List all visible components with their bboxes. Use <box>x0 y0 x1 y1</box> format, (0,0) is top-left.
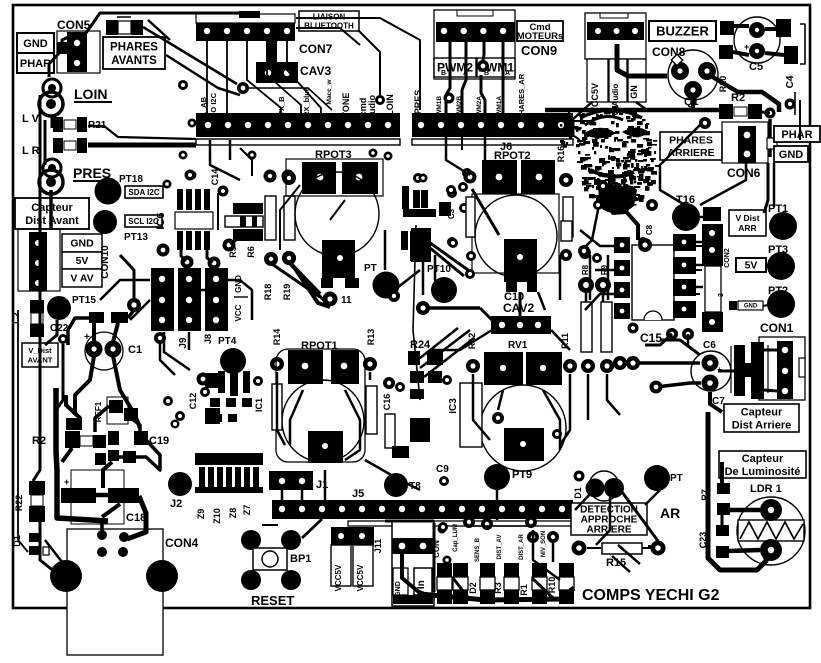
svg-text:PT15: PT15 <box>72 295 96 306</box>
svg-text:RESET: RESET <box>251 593 294 608</box>
svg-text:PHAR: PHAR <box>781 129 812 141</box>
svg-text:Capteur: Capteur <box>742 453 784 465</box>
svg-text:CON10: CON10 <box>100 245 111 279</box>
svg-text:BP1: BP1 <box>290 553 311 565</box>
svg-text:L R: L R <box>22 145 40 157</box>
svg-text:Dist Arriere: Dist Arriere <box>732 419 792 431</box>
svg-text:J8: J8 <box>203 334 213 344</box>
svg-text:R1: R1 <box>519 584 529 596</box>
svg-text:PT10: PT10 <box>427 264 451 275</box>
svg-text:SENS_B: SENS_B <box>475 537 481 562</box>
svg-text:GND: GND <box>744 304 758 310</box>
svg-text:R8: R8 <box>581 264 590 275</box>
svg-text:R3: R3 <box>493 582 503 594</box>
svg-text:J2: J2 <box>170 498 182 510</box>
svg-text:PHARES: PHARES <box>669 134 713 146</box>
svg-text:J1: J1 <box>316 479 328 491</box>
svg-text:D1: D1 <box>573 487 583 499</box>
svg-text:Macc_w: Macc_w <box>326 79 333 105</box>
svg-text:C3: C3 <box>447 208 456 219</box>
svg-text:PT9: PT9 <box>512 469 532 481</box>
svg-text:A: A <box>505 70 510 77</box>
svg-text:R10: R10 <box>547 577 557 594</box>
svg-text:CON5: CON5 <box>57 18 91 32</box>
svg-text:SDA I2C: SDA I2C <box>128 188 159 197</box>
svg-text:R19: R19 <box>282 284 292 301</box>
svg-text:DIST_AR: DIST_AR <box>519 533 525 559</box>
svg-text:CON7: CON7 <box>299 42 333 56</box>
svg-text:ARR: ARR <box>738 223 756 233</box>
svg-text:C15: C15 <box>640 331 662 345</box>
svg-text:De Luminosité: De Luminosité <box>725 466 801 478</box>
svg-text:D2: D2 <box>468 582 478 594</box>
svg-text:NIV_SON: NIV_SON <box>541 531 547 557</box>
svg-text:Z7: Z7 <box>242 505 252 516</box>
svg-text:VCC5V: VCC5V <box>356 564 365 591</box>
svg-text:PHARES: PHARES <box>110 41 158 53</box>
svg-text:LDR 1: LDR 1 <box>750 483 782 495</box>
svg-text:IC6: IC6 <box>155 212 167 229</box>
svg-text:GND: GND <box>395 581 402 597</box>
svg-text:LIAISON: LIAISON <box>313 12 346 21</box>
svg-text:CON8: CON8 <box>652 45 686 59</box>
svg-text:J11: J11 <box>373 539 383 554</box>
svg-text:IC1: IC1 <box>254 398 264 412</box>
svg-text:RV1: RV1 <box>508 340 528 351</box>
svg-text:PT13: PT13 <box>124 232 148 243</box>
svg-text:CON2: CON2 <box>724 248 731 268</box>
svg-text:Cap_LUM: Cap_LUM <box>453 524 459 552</box>
svg-text:BUZZER: BUZZER <box>656 24 709 39</box>
svg-text:CAV3: CAV3 <box>300 64 331 78</box>
svg-text:MOTEURs: MOTEURs <box>517 31 563 42</box>
svg-text:5V: 5V <box>745 260 758 272</box>
svg-text:R22: R22 <box>14 495 24 512</box>
svg-text:PRES: PRES <box>413 90 423 115</box>
svg-text:C12: C12 <box>188 393 198 410</box>
svg-text:C9: C9 <box>436 464 449 475</box>
svg-text:C4: C4 <box>785 75 796 88</box>
svg-text:J9: J9 <box>178 337 189 349</box>
svg-text:PT: PT <box>364 263 377 274</box>
svg-text:R14: R14 <box>272 329 282 346</box>
svg-text:5V: 5V <box>76 255 89 267</box>
svg-text:R5: R5 <box>228 246 238 258</box>
svg-text:PT4: PT4 <box>218 336 237 347</box>
svg-text:CON9: CON9 <box>521 43 557 58</box>
svg-text:C16: C16 <box>382 394 392 411</box>
svg-text:C6: C6 <box>703 340 716 351</box>
svg-text:R24: R24 <box>410 339 431 351</box>
svg-text:L V: L V <box>22 113 40 125</box>
svg-text:D1: D1 <box>12 535 22 547</box>
svg-text:3: 3 <box>718 293 725 297</box>
svg-text:PT: PT <box>670 473 683 484</box>
svg-text:R16: R16 <box>556 146 566 163</box>
svg-text:C22: C22 <box>50 323 69 334</box>
svg-text:AR: AR <box>660 505 680 521</box>
svg-text:PHAR: PHAR <box>20 58 51 70</box>
svg-text:+: + <box>744 42 749 52</box>
svg-text:B: B <box>441 70 446 77</box>
svg-text:Alim Accu: Alim Accu <box>397 597 429 604</box>
svg-text:V Dist: V Dist <box>735 213 759 223</box>
svg-text:CON: CON <box>432 540 441 558</box>
svg-text:GN: GN <box>629 85 639 99</box>
svg-text:C1: C1 <box>128 344 142 356</box>
svg-text:GND: GND <box>234 275 243 293</box>
svg-text:+: + <box>84 332 90 343</box>
svg-text:Z10: Z10 <box>212 508 222 524</box>
svg-text:CON1: CON1 <box>760 321 794 335</box>
svg-text:11: 11 <box>341 295 352 306</box>
svg-text:COMPS YECHI G2: COMPS YECHI G2 <box>582 587 720 604</box>
svg-text:R13: R13 <box>366 329 376 346</box>
svg-text:AVANTS: AVANTS <box>111 55 157 67</box>
svg-text:Z8: Z8 <box>228 508 238 519</box>
svg-text:Capteur: Capteur <box>741 406 783 418</box>
svg-text:C2: C2 <box>11 312 21 324</box>
svg-text:VCC5V: VCC5V <box>334 564 343 591</box>
svg-text:R6: R6 <box>246 246 256 258</box>
svg-text:DIST_AV: DIST_AV <box>497 535 503 560</box>
svg-text:PT18: PT18 <box>119 174 143 185</box>
svg-text:LOIN: LOIN <box>74 86 107 102</box>
svg-text:Z9: Z9 <box>196 509 206 520</box>
svg-text:+: + <box>64 477 69 487</box>
svg-text:GND: GND <box>23 38 48 50</box>
svg-text:C18: C18 <box>126 512 146 524</box>
svg-text:VCC: VCC <box>234 304 243 321</box>
svg-text:C8: C8 <box>645 224 654 235</box>
svg-text:J5: J5 <box>352 488 364 500</box>
svg-text:CON6: CON6 <box>727 166 761 180</box>
svg-text:ARRIERE: ARRIERE <box>667 147 714 159</box>
svg-text:C14: C14 <box>210 169 220 186</box>
svg-text:IC3: IC3 <box>448 398 459 414</box>
svg-text:V AV: V AV <box>70 273 93 285</box>
svg-text:C5: C5 <box>749 61 763 73</box>
svg-text:GND: GND <box>779 149 804 161</box>
svg-text:LOIN: LOIN <box>385 94 395 116</box>
svg-text:GND: GND <box>70 238 94 250</box>
svg-text:CON4: CON4 <box>165 536 199 550</box>
svg-text:R18: R18 <box>263 284 273 301</box>
